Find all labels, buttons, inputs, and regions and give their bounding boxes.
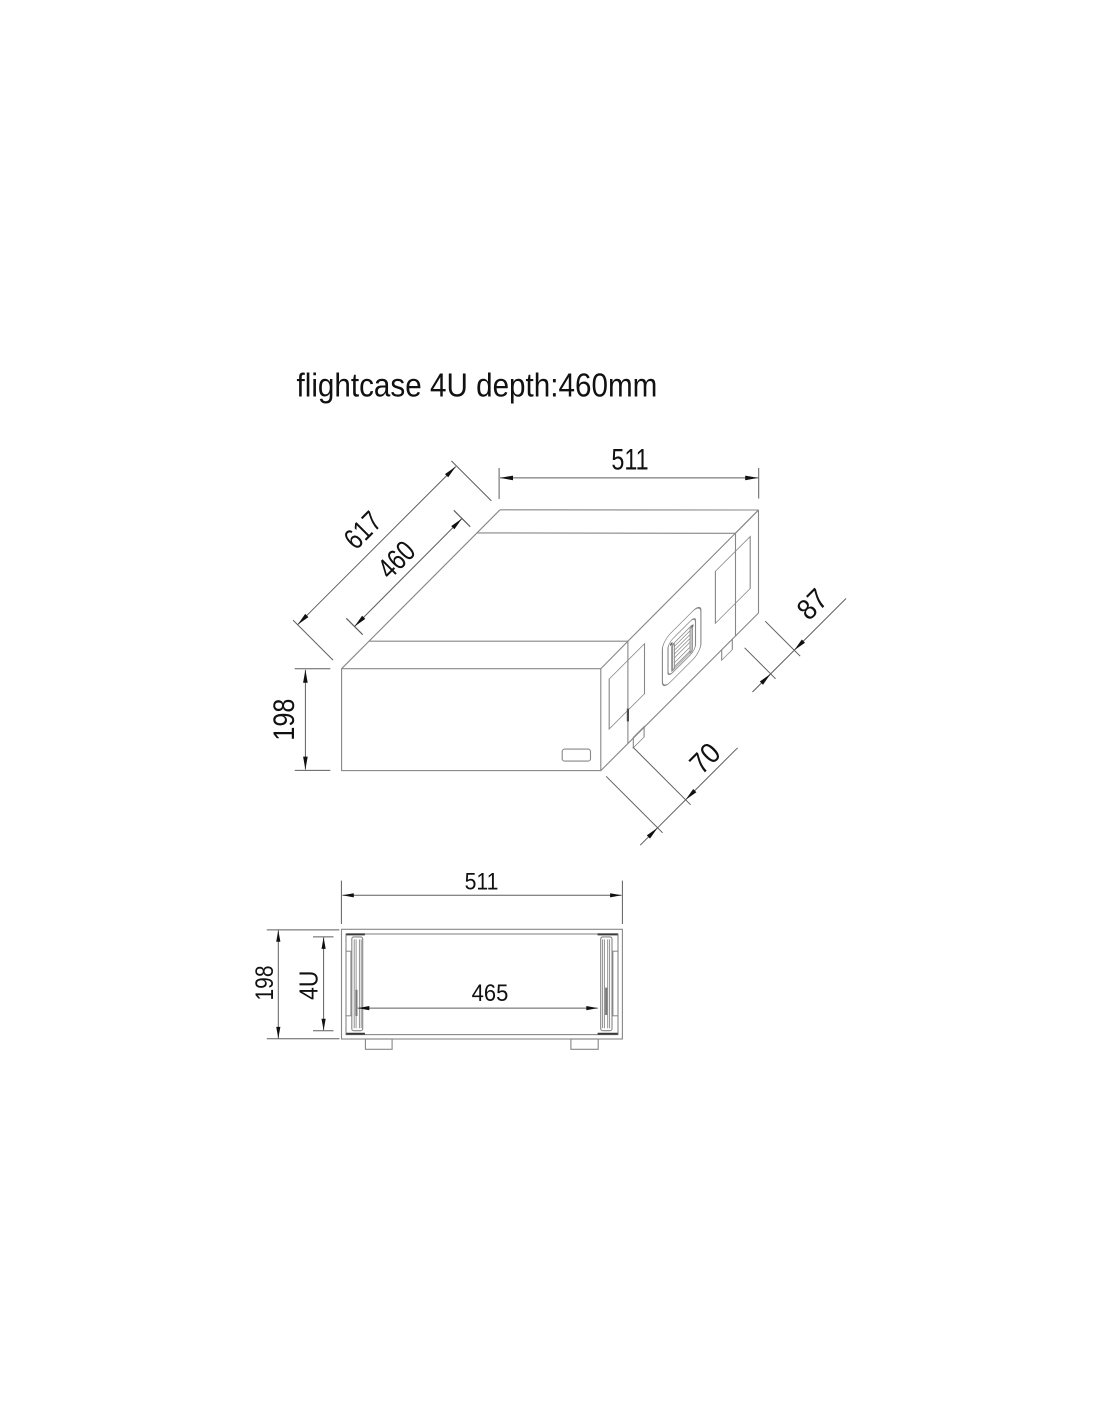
svg-text:198: 198 xyxy=(267,699,301,741)
svg-text:198: 198 xyxy=(250,965,278,1000)
svg-text:4U: 4U xyxy=(295,971,324,1000)
svg-text:465: 465 xyxy=(472,979,509,1006)
svg-text:511: 511 xyxy=(465,868,499,894)
svg-text:511: 511 xyxy=(611,443,648,476)
svg-text:flightcase 4U depth:460mm: flightcase 4U depth:460mm xyxy=(297,366,658,404)
